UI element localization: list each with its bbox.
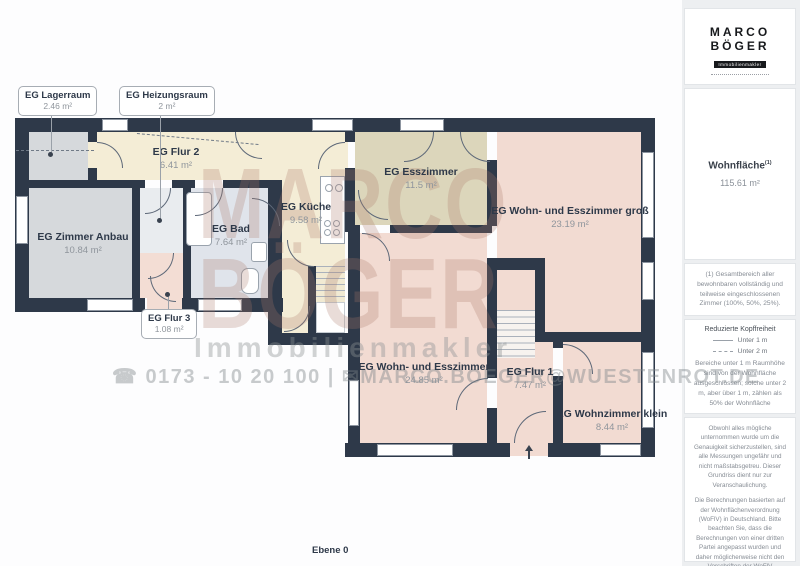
disclaimer-accuracy: Obwohl alles mögliche unternommen wurde … — [692, 424, 788, 490]
room-label-kueche: EG Küche9.58 m² — [281, 201, 331, 227]
wall-kueche-right-b — [345, 168, 355, 232]
room-label-bad: EG Bad7.64 m² — [212, 223, 250, 249]
room-label-flur1: EG Flur 17.47 m² — [507, 366, 554, 392]
leader-dot-flur3 — [165, 292, 170, 297]
wall-esszimmer-bottom-b — [390, 225, 492, 233]
floorplan-canvas: MARCO BÖGER Immobilienmakler ☎ 0173 - 10… — [0, 0, 682, 566]
window-top-3 — [400, 119, 444, 131]
sidebar-card-legend: Reduzierte Kopffreiheit Unter 1 m Unter … — [684, 319, 796, 414]
wall-klein-top — [535, 332, 655, 342]
wall-flur2-c — [223, 180, 282, 188]
window-left-1 — [16, 196, 28, 244]
wall-esszimmer-bottom-a — [352, 225, 360, 233]
stove-burner-3 — [324, 229, 331, 236]
living-area-label: Wohnfläche — [708, 161, 764, 172]
callout-flur3: EG Flur 31.08 m² — [141, 309, 197, 339]
room-label-esszimmer: EG Esszimmer11.5 m² — [384, 166, 458, 192]
stove-burner-4 — [333, 229, 340, 236]
callout-heizungsraum: EG Heizungsraum2 m² — [119, 86, 215, 116]
agency-logo-line2: BÖGER — [685, 39, 795, 53]
window-bottomleft-1 — [87, 299, 133, 311]
leader-lagerraum — [51, 116, 52, 154]
leader-dot-heizungsraum — [157, 218, 162, 223]
wall-anbau-right — [132, 185, 140, 298]
window-bottom-2 — [600, 444, 641, 456]
sidebar-card-disclaimer: Obwohl alles mögliche unternommen wurde … — [684, 417, 796, 562]
staircase-hall — [316, 266, 345, 302]
living-area-footnote-marker: (1) — [765, 160, 772, 166]
wall-flur1-left-b — [487, 408, 497, 443]
leader-flur3 — [168, 296, 169, 310]
legend-item-under1m: Unter 1 m — [692, 337, 788, 344]
toilet — [241, 268, 259, 294]
room-label-wohnesszimmer-gross: EG Wohn- und Esszimmer groß23.19 m² — [491, 205, 648, 231]
legend-dashed-line-icon — [713, 351, 733, 352]
kitchen-sink-bowl-2 — [335, 184, 343, 192]
headroom-dash-lagerraum — [16, 150, 94, 151]
wall-stair-left — [308, 266, 316, 333]
entrance-arrow-line — [528, 450, 530, 459]
window-top-1 — [102, 119, 128, 131]
kitchen-sink-bowl-1 — [325, 184, 333, 192]
wall-flur2-a — [15, 180, 145, 188]
level-label: Ebene 0 — [312, 545, 348, 556]
leader-heizungsraum — [160, 116, 161, 220]
window-right-2 — [642, 262, 654, 300]
wall-corridor-bottom — [268, 333, 360, 345]
leader-dot-lagerraum — [48, 152, 53, 157]
legend-title: Reduzierte Kopffreiheit — [692, 326, 788, 333]
legend-solid-line-icon — [713, 340, 733, 341]
window-bottomleft-2 — [198, 299, 242, 311]
room-wohnesszimmer-floor — [360, 233, 487, 443]
staircase-landing — [316, 302, 345, 333]
legend-note: Bereiche unter 1 m Raumhöhe sind von der… — [692, 359, 788, 408]
phone-icon: ☎ — [112, 366, 138, 388]
room-lagerraum-floor — [24, 132, 88, 180]
wall-flur2-b — [172, 180, 195, 188]
sidebar-card-footnote: (1) Gesamtbereich aller bewohnbaren voll… — [684, 263, 796, 316]
sidebar-card-logo: MARCO BÖGER Immobilienmakler — [684, 8, 796, 85]
legend-item-under2m: Unter 2 m — [692, 348, 788, 355]
wall-stairhall-top — [487, 258, 545, 270]
floorplan-page: MARCO BÖGER Immobilienmakler ☎ 0173 - 10… — [0, 0, 800, 566]
sidebar-card-area: Wohnfläche(1) 115.61 m² — [684, 88, 796, 260]
disclaimer-woflv: Die Berechnungen basierten auf der Wohnf… — [692, 496, 788, 566]
room-label-wohnzimmer-klein: EG Wohnzimmer klein8.44 m² — [557, 408, 668, 434]
agency-logo-tagline — [711, 74, 769, 75]
staircase-flur1 — [497, 310, 535, 358]
room-label-wohnesszimmer: EG Wohn- und Esszimmer24.85 m² — [358, 361, 489, 387]
watermark-phone: 0173 - 10 20 100 — [145, 366, 320, 388]
stove-burner-2 — [333, 220, 340, 227]
window-bottom-1 — [377, 444, 453, 456]
footnote-text: (1) Gesamtbereich aller bewohnbaren voll… — [685, 264, 795, 316]
watermark-divider: | — [328, 366, 335, 388]
agency-logo-line1: MARCO — [685, 25, 795, 39]
wall-klein-left-a — [553, 342, 563, 348]
wall-stair-right — [535, 270, 545, 338]
sink — [251, 242, 267, 262]
window-top-2 — [312, 119, 353, 131]
living-area-value: 115.61 m² — [708, 178, 771, 188]
agency-logo-badge: Immobilienmakler — [714, 61, 765, 68]
callout-lagerraum: EG Lagerraum2.46 m² — [18, 86, 97, 116]
wall-lager-right-a — [88, 128, 97, 142]
room-label-zimmer-anbau: EG Zimmer Anbau10.84 m² — [37, 231, 128, 257]
